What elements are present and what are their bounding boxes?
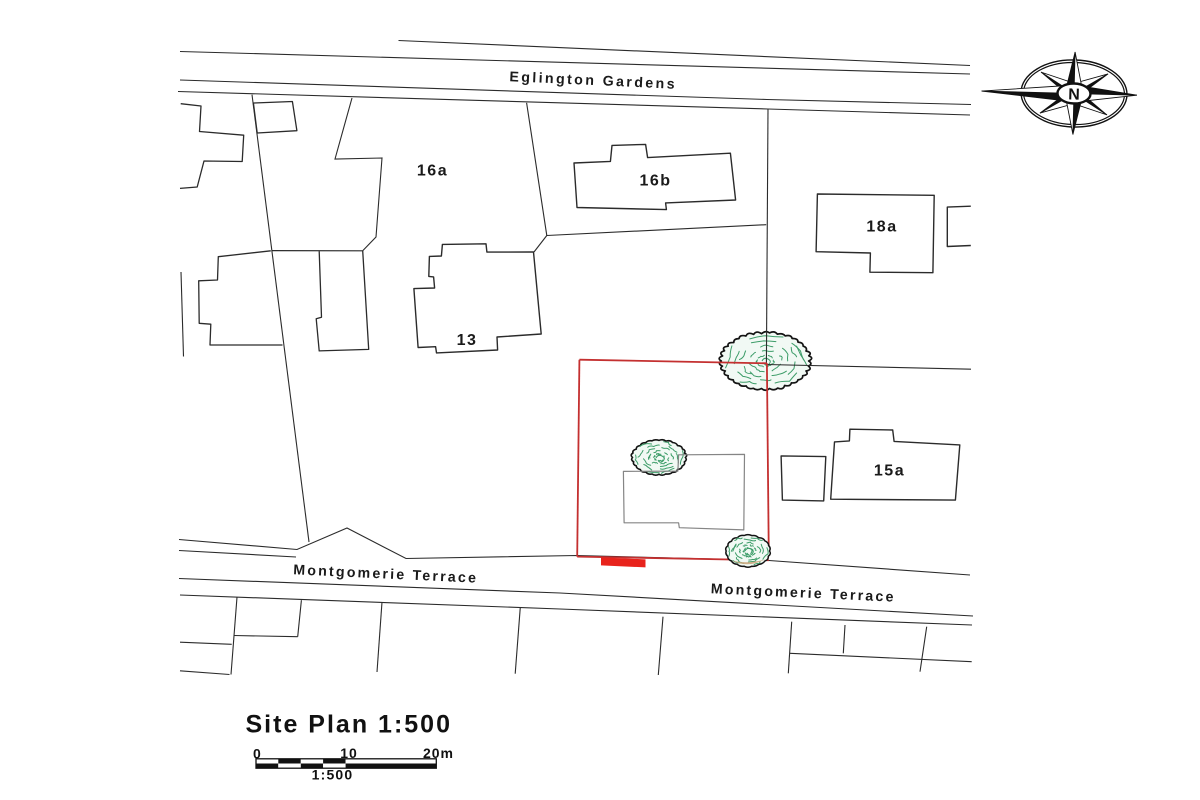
svg-text:16b: 16b xyxy=(639,173,671,190)
svg-text:1:500: 1:500 xyxy=(312,767,354,783)
svg-text:Site Plan 1:500: Site Plan 1:500 xyxy=(246,711,452,739)
svg-text:18a: 18a xyxy=(866,219,897,236)
svg-text:N: N xyxy=(1068,86,1080,103)
svg-text:15a: 15a xyxy=(874,463,905,480)
svg-text:13: 13 xyxy=(457,332,478,349)
svg-text:16a: 16a xyxy=(417,163,448,180)
